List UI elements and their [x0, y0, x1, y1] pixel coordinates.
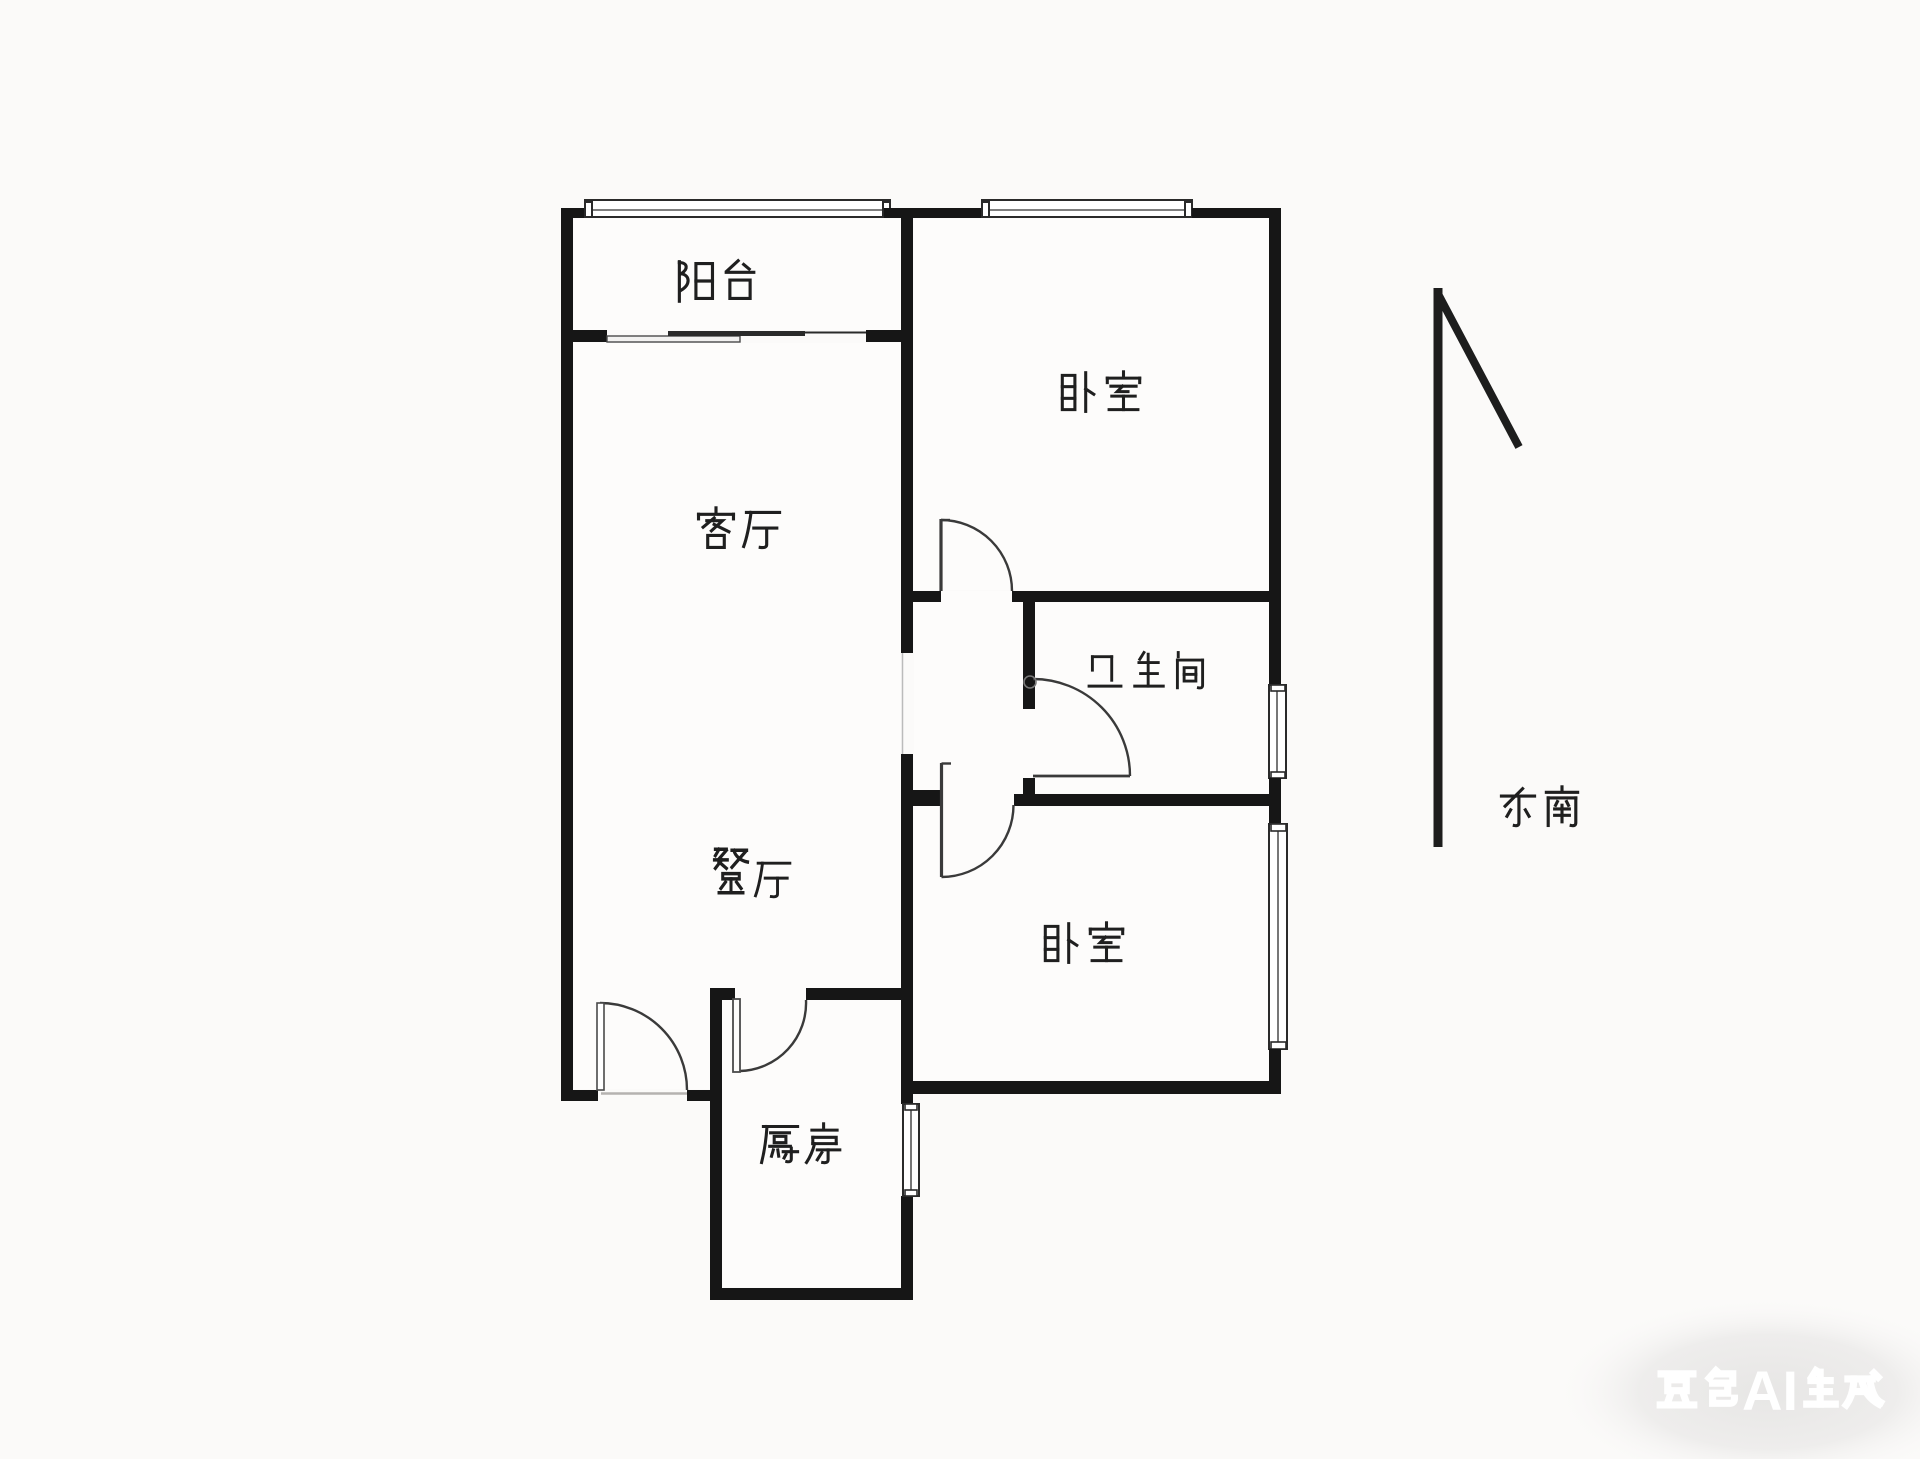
svg-text:AI: AI [1742, 1359, 1798, 1422]
